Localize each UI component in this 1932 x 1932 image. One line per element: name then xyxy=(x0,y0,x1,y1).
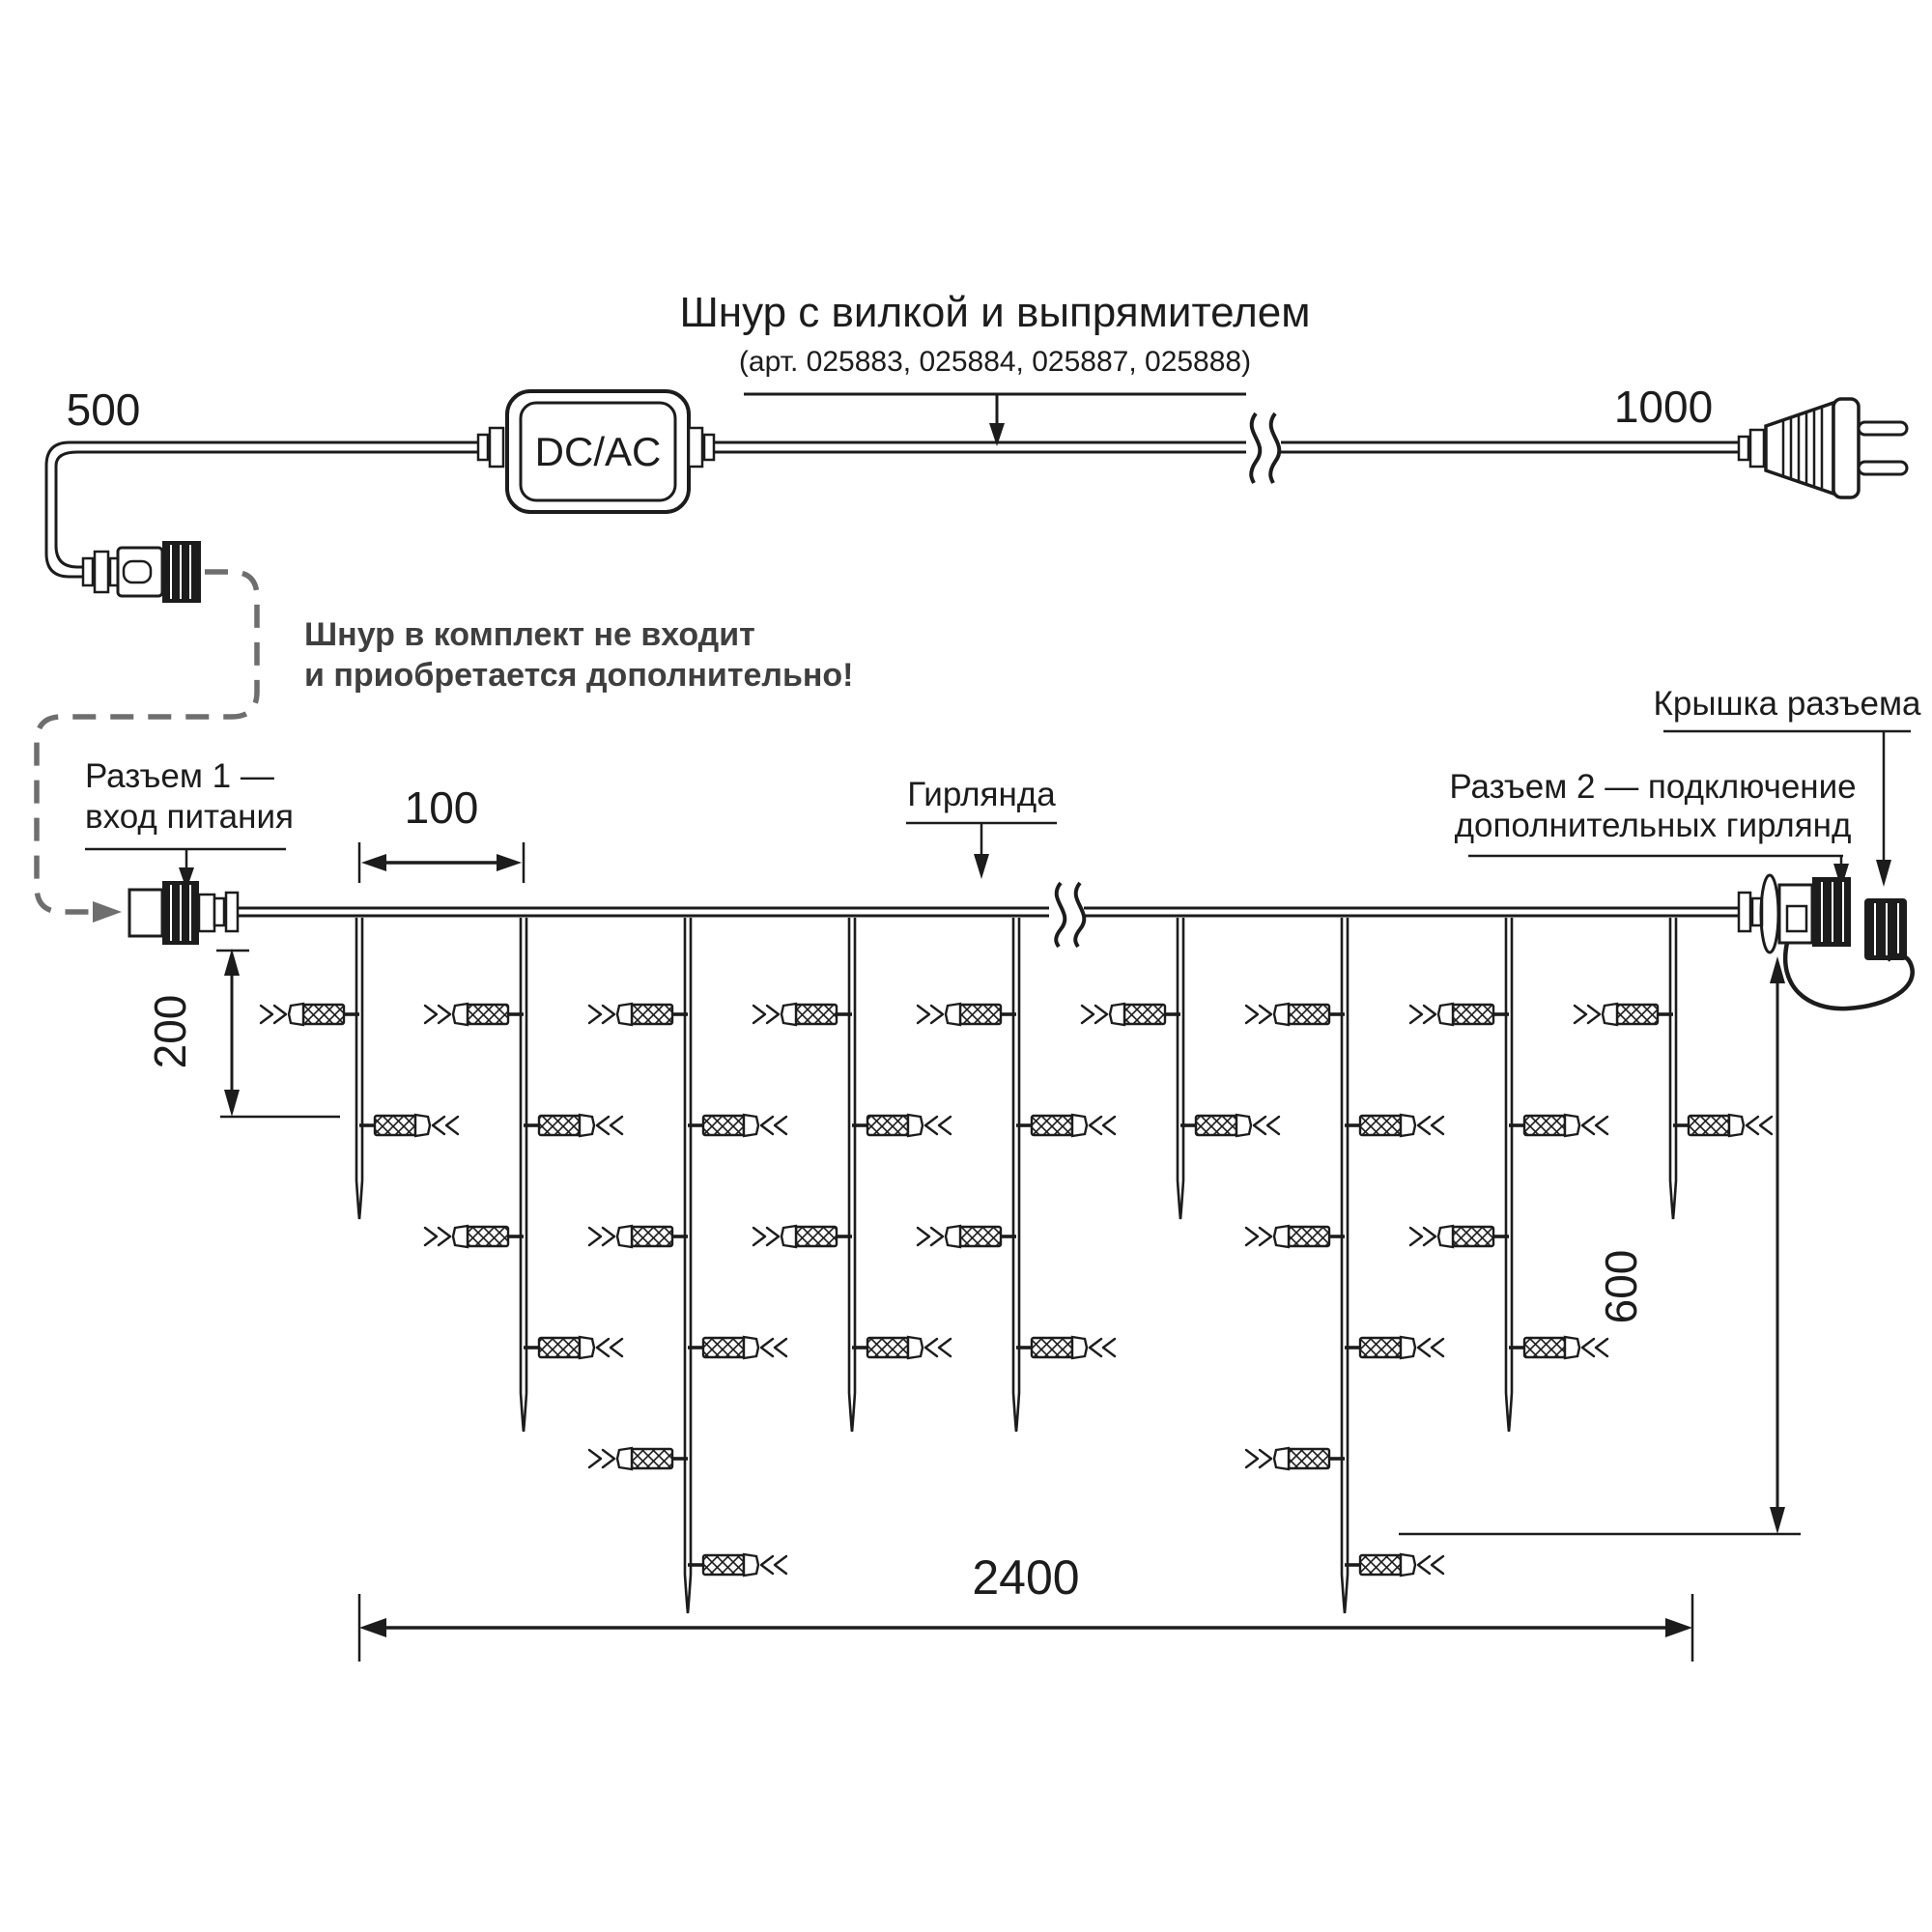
dimension-100: 100 xyxy=(359,782,524,883)
led-cap-icon xyxy=(1401,1115,1415,1136)
led-cap-icon xyxy=(744,1115,758,1136)
led-bulb-icon xyxy=(1360,1338,1401,1357)
led-bulb-icon xyxy=(1032,1338,1072,1357)
light-rays-icon xyxy=(918,1228,943,1245)
connector1-label-line2: вход питания xyxy=(85,798,294,836)
dim-1000-label: 1000 xyxy=(1614,382,1713,432)
diagram-svg: Шнур с вилкой и выпрямителем (арт. 02588… xyxy=(0,0,1932,1932)
light-rays-icon xyxy=(1410,1228,1435,1245)
icicle-drops-layer xyxy=(261,918,1772,1613)
dim-2400-label: 2400 xyxy=(972,1550,1079,1605)
light-rays-icon xyxy=(1410,1006,1435,1023)
led-cap-icon xyxy=(946,1004,960,1025)
led-bulb-icon xyxy=(1124,1005,1165,1024)
led-cap-icon xyxy=(1565,1115,1579,1136)
light-rays-icon xyxy=(918,1006,943,1023)
led-bulb-icon xyxy=(1617,1005,1658,1024)
light-rays-icon xyxy=(597,1339,622,1356)
led-bulb-icon xyxy=(539,1116,580,1135)
led-cap-icon xyxy=(580,1337,594,1358)
led-bulb-icon xyxy=(703,1338,744,1357)
led-bulb-icon xyxy=(796,1227,837,1246)
light-rays-icon xyxy=(1418,1339,1443,1356)
led-bulb-icon xyxy=(960,1005,1001,1024)
dc-ac-converter: DC/AC xyxy=(478,391,714,512)
connector1-label-line1: Разъем 1 — xyxy=(85,757,274,795)
led-bulb-icon xyxy=(1032,1116,1072,1135)
led-bulb-icon xyxy=(632,1449,672,1468)
light-rays-icon xyxy=(1418,1117,1443,1134)
light-rays-icon xyxy=(589,1450,614,1467)
icicle-garland-diagram: Шнур с вилкой и выпрямителем (арт. 02588… xyxy=(0,0,1932,1932)
led-bulb-icon xyxy=(375,1116,415,1135)
light-rays-icon xyxy=(433,1117,458,1134)
led-bulb-icon xyxy=(539,1338,580,1357)
led-cap-icon xyxy=(1274,1226,1289,1247)
led-cap-icon xyxy=(1401,1337,1415,1358)
icicle-drop xyxy=(849,918,855,1432)
connector2-label-line1: Разъем 2 — подключение xyxy=(1449,768,1856,806)
light-rays-icon xyxy=(1246,1006,1271,1023)
led-bulb-icon xyxy=(867,1338,908,1357)
led-cap-icon xyxy=(415,1115,430,1136)
led-bulb-icon xyxy=(1289,1227,1329,1246)
cord-subtitle: (арт. 025883, 025884, 025887, 025888) xyxy=(739,346,1251,378)
led-cap-icon xyxy=(946,1226,960,1247)
led-cap-icon xyxy=(908,1337,923,1358)
led-cap-icon xyxy=(1729,1115,1744,1136)
wire-break-icon xyxy=(1056,883,1084,947)
led-cap-icon xyxy=(1274,1004,1289,1025)
cable-break-icon xyxy=(1251,413,1279,483)
led-cap-icon xyxy=(1072,1337,1087,1358)
led-cap-icon xyxy=(1236,1115,1251,1136)
dim-200-label: 200 xyxy=(145,995,195,1069)
light-rays-icon xyxy=(1090,1339,1115,1356)
garland-wire xyxy=(238,908,1739,916)
power-cord-assembly: Шнур с вилкой и выпрямителем (арт. 02588… xyxy=(46,289,1907,603)
led-bulb-icon xyxy=(303,1005,344,1024)
light-rays-icon xyxy=(1747,1117,1772,1134)
led-bulb-icon xyxy=(1524,1116,1565,1135)
light-rays-icon xyxy=(1418,1556,1443,1574)
cap-arrowhead-icon xyxy=(1876,860,1891,887)
led-cap-icon xyxy=(617,1226,632,1247)
led-bulb-icon xyxy=(867,1116,908,1135)
led-bulb-icon xyxy=(1689,1116,1729,1135)
led-bulb-icon xyxy=(703,1116,744,1135)
light-rays-icon xyxy=(1090,1117,1115,1134)
connector2-label-line2: дополнительных гирлянд xyxy=(1455,807,1852,844)
icicle-drop xyxy=(1178,918,1183,1219)
led-bulb-icon xyxy=(1360,1555,1401,1575)
led-cap-icon xyxy=(1110,1004,1124,1025)
light-rays-icon xyxy=(753,1228,779,1245)
dashed-arrowhead-icon xyxy=(93,901,122,923)
connector-cap xyxy=(1864,898,1907,960)
dim-500-label: 500 xyxy=(67,384,141,435)
light-rays-icon xyxy=(1582,1339,1607,1356)
icicle-drop xyxy=(1013,918,1019,1432)
led-cap-icon xyxy=(1438,1226,1453,1247)
led-bulb-icon xyxy=(1453,1005,1493,1024)
led-cap-icon xyxy=(289,1004,303,1025)
led-cap-icon xyxy=(1274,1448,1289,1469)
icicle-drop xyxy=(1670,918,1676,1219)
light-rays-icon xyxy=(261,1006,286,1023)
icicle-drop xyxy=(521,918,526,1432)
led-cap-icon xyxy=(453,1004,468,1025)
led-cap-icon xyxy=(744,1337,758,1358)
note-line1: Шнур в комплект не входит xyxy=(304,616,755,653)
dim-600-label: 600 xyxy=(1596,1250,1646,1324)
led-cap-icon xyxy=(580,1115,594,1136)
light-rays-icon xyxy=(1246,1450,1271,1467)
light-rays-icon xyxy=(925,1117,951,1134)
connector-black-cap xyxy=(162,541,201,603)
light-rays-icon xyxy=(925,1339,951,1356)
led-cap-icon xyxy=(1438,1004,1453,1025)
led-cap-icon xyxy=(617,1004,632,1025)
light-rays-icon xyxy=(425,1006,450,1023)
led-bulb-icon xyxy=(703,1555,744,1575)
light-rays-icon xyxy=(1082,1006,1107,1023)
mains-plug-icon xyxy=(1739,399,1907,497)
connector1-black-ring xyxy=(162,881,199,945)
light-rays-icon xyxy=(589,1006,614,1023)
cord-not-included-link: Шнур в комплект не входит и приобретаетс… xyxy=(37,572,854,923)
power-input-connector xyxy=(129,881,238,945)
led-bulb-icon xyxy=(468,1005,508,1024)
led-cap-icon xyxy=(453,1226,468,1247)
garland-label: Гирлянда xyxy=(907,776,1056,813)
led-bulb-icon xyxy=(468,1227,508,1246)
cord-title: Шнур с вилкой и выпрямителем xyxy=(679,289,1310,336)
light-rays-icon xyxy=(589,1228,614,1245)
dimension-200: 200 xyxy=(145,949,340,1117)
light-rays-icon xyxy=(753,1006,779,1023)
cord-output-connector xyxy=(83,541,201,603)
led-cap-icon xyxy=(1603,1004,1617,1025)
icicle-drop xyxy=(356,918,362,1219)
led-bulb-icon xyxy=(632,1005,672,1024)
led-cap-icon xyxy=(908,1115,923,1136)
converter-label: DC/AC xyxy=(535,429,662,474)
cord-right-cable xyxy=(714,442,1739,452)
icicle-drop xyxy=(1506,918,1512,1432)
led-cap-icon xyxy=(744,1554,758,1576)
light-rays-icon xyxy=(761,1117,786,1134)
led-cap-icon xyxy=(1565,1337,1579,1358)
light-rays-icon xyxy=(761,1339,786,1356)
icicle-drop xyxy=(1342,918,1348,1613)
light-rays-icon xyxy=(761,1556,786,1574)
led-bulb-icon xyxy=(1289,1449,1329,1468)
led-bulb-icon xyxy=(960,1227,1001,1246)
led-cap-icon xyxy=(1401,1554,1415,1576)
led-cap-icon xyxy=(781,1004,796,1025)
led-bulb-icon xyxy=(1196,1116,1236,1135)
extension-connector xyxy=(1739,875,1913,1009)
note-line2: и приобретается дополнительно! xyxy=(304,657,854,694)
cap-label: Крышка разъема xyxy=(1653,685,1921,723)
light-rays-icon xyxy=(1254,1117,1279,1134)
led-bulb-icon xyxy=(1453,1227,1493,1246)
icicle-drop xyxy=(685,918,691,1613)
light-rays-icon xyxy=(597,1117,622,1134)
strain-loop-icon xyxy=(1761,875,1778,952)
led-cap-icon xyxy=(617,1448,632,1469)
led-bulb-icon xyxy=(1524,1338,1565,1357)
led-bulb-icon xyxy=(632,1227,672,1246)
light-rays-icon xyxy=(1246,1228,1271,1245)
led-bulb-icon xyxy=(796,1005,837,1024)
light-rays-icon xyxy=(1575,1006,1600,1023)
light-rays-icon xyxy=(1582,1117,1607,1134)
cord-left-cable xyxy=(46,442,478,577)
connector2-black-ring xyxy=(1812,877,1851,947)
dashed-connection-line xyxy=(37,572,257,912)
led-bulb-icon xyxy=(1360,1116,1401,1135)
dimension-2400: 2400 xyxy=(359,1550,1692,1662)
led-bulb-icon xyxy=(1289,1005,1329,1024)
led-cap-icon xyxy=(1072,1115,1087,1136)
dim-100-label: 100 xyxy=(405,782,479,833)
led-cap-icon xyxy=(781,1226,796,1247)
light-rays-icon xyxy=(425,1228,450,1245)
garland-arrowhead-icon xyxy=(974,854,989,879)
